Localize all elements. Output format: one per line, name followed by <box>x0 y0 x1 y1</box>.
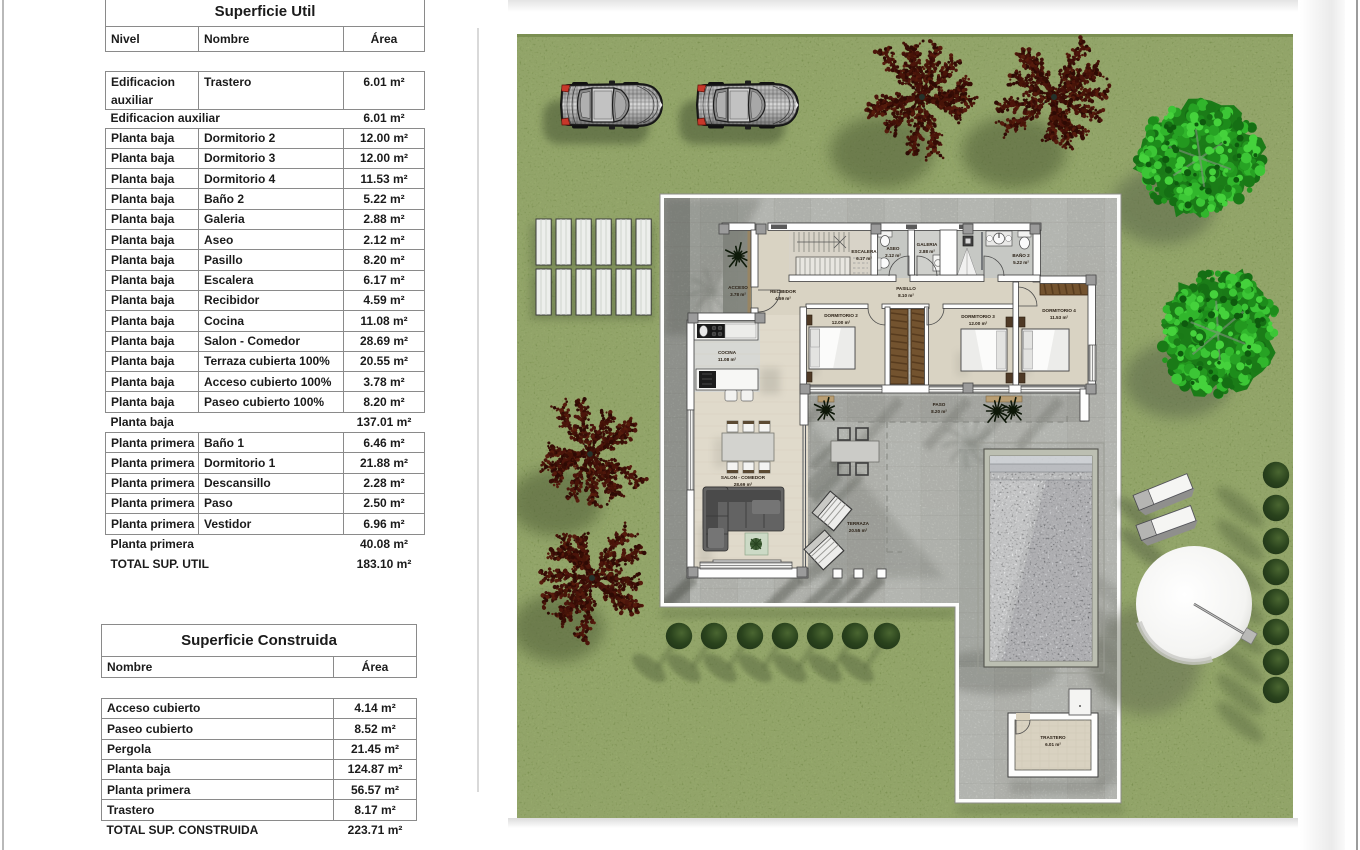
svg-text:PASO: PASO <box>933 402 946 407</box>
svg-text:GALERIA: GALERIA <box>917 242 938 247</box>
svg-text:8.20 m²: 8.20 m² <box>931 409 947 414</box>
svg-text:11.08 m²: 11.08 m² <box>718 357 737 362</box>
svg-text:TRASTERO: TRASTERO <box>1040 735 1066 740</box>
svg-text:2.88 m²: 2.88 m² <box>919 249 935 254</box>
svg-text:11.53 m²: 11.53 m² <box>1050 315 1069 320</box>
svg-text:ESCALERA: ESCALERA <box>851 249 877 254</box>
svg-text:8.10 m²: 8.10 m² <box>898 293 914 298</box>
svg-text:12.00 m²: 12.00 m² <box>832 320 851 325</box>
svg-text:12.00 m²: 12.00 m² <box>969 321 988 326</box>
svg-text:ACCESO: ACCESO <box>728 285 748 290</box>
svg-text:COCINA: COCINA <box>718 350 737 355</box>
svg-text:PASILLO: PASILLO <box>896 286 916 291</box>
svg-text:6.01 m²: 6.01 m² <box>1045 742 1061 747</box>
svg-text:2.12 m²: 2.12 m² <box>885 253 901 258</box>
svg-text:DORMITORIO 2: DORMITORIO 2 <box>824 313 858 318</box>
svg-text:DORMITORIO 3: DORMITORIO 3 <box>961 314 995 319</box>
svg-text:3.78 m²: 3.78 m² <box>730 292 746 297</box>
svg-text:BAÑO 2: BAÑO 2 <box>1012 252 1030 258</box>
svg-text:28.69 m²: 28.69 m² <box>734 482 753 487</box>
svg-text:20.55 m²: 20.55 m² <box>849 528 868 533</box>
svg-text:ASEO: ASEO <box>886 246 899 251</box>
svg-text:SALON - COMEDOR: SALON - COMEDOR <box>721 475 766 480</box>
svg-text:TERRAZA: TERRAZA <box>847 521 870 526</box>
svg-text:6.17 m²: 6.17 m² <box>856 256 872 261</box>
svg-text:5.22 m²: 5.22 m² <box>1013 260 1029 265</box>
svg-text:4.59 m²: 4.59 m² <box>775 296 791 301</box>
svg-text:RECIBIDOR: RECIBIDOR <box>770 289 796 294</box>
svg-text:DORMITORIO 4: DORMITORIO 4 <box>1042 308 1076 313</box>
